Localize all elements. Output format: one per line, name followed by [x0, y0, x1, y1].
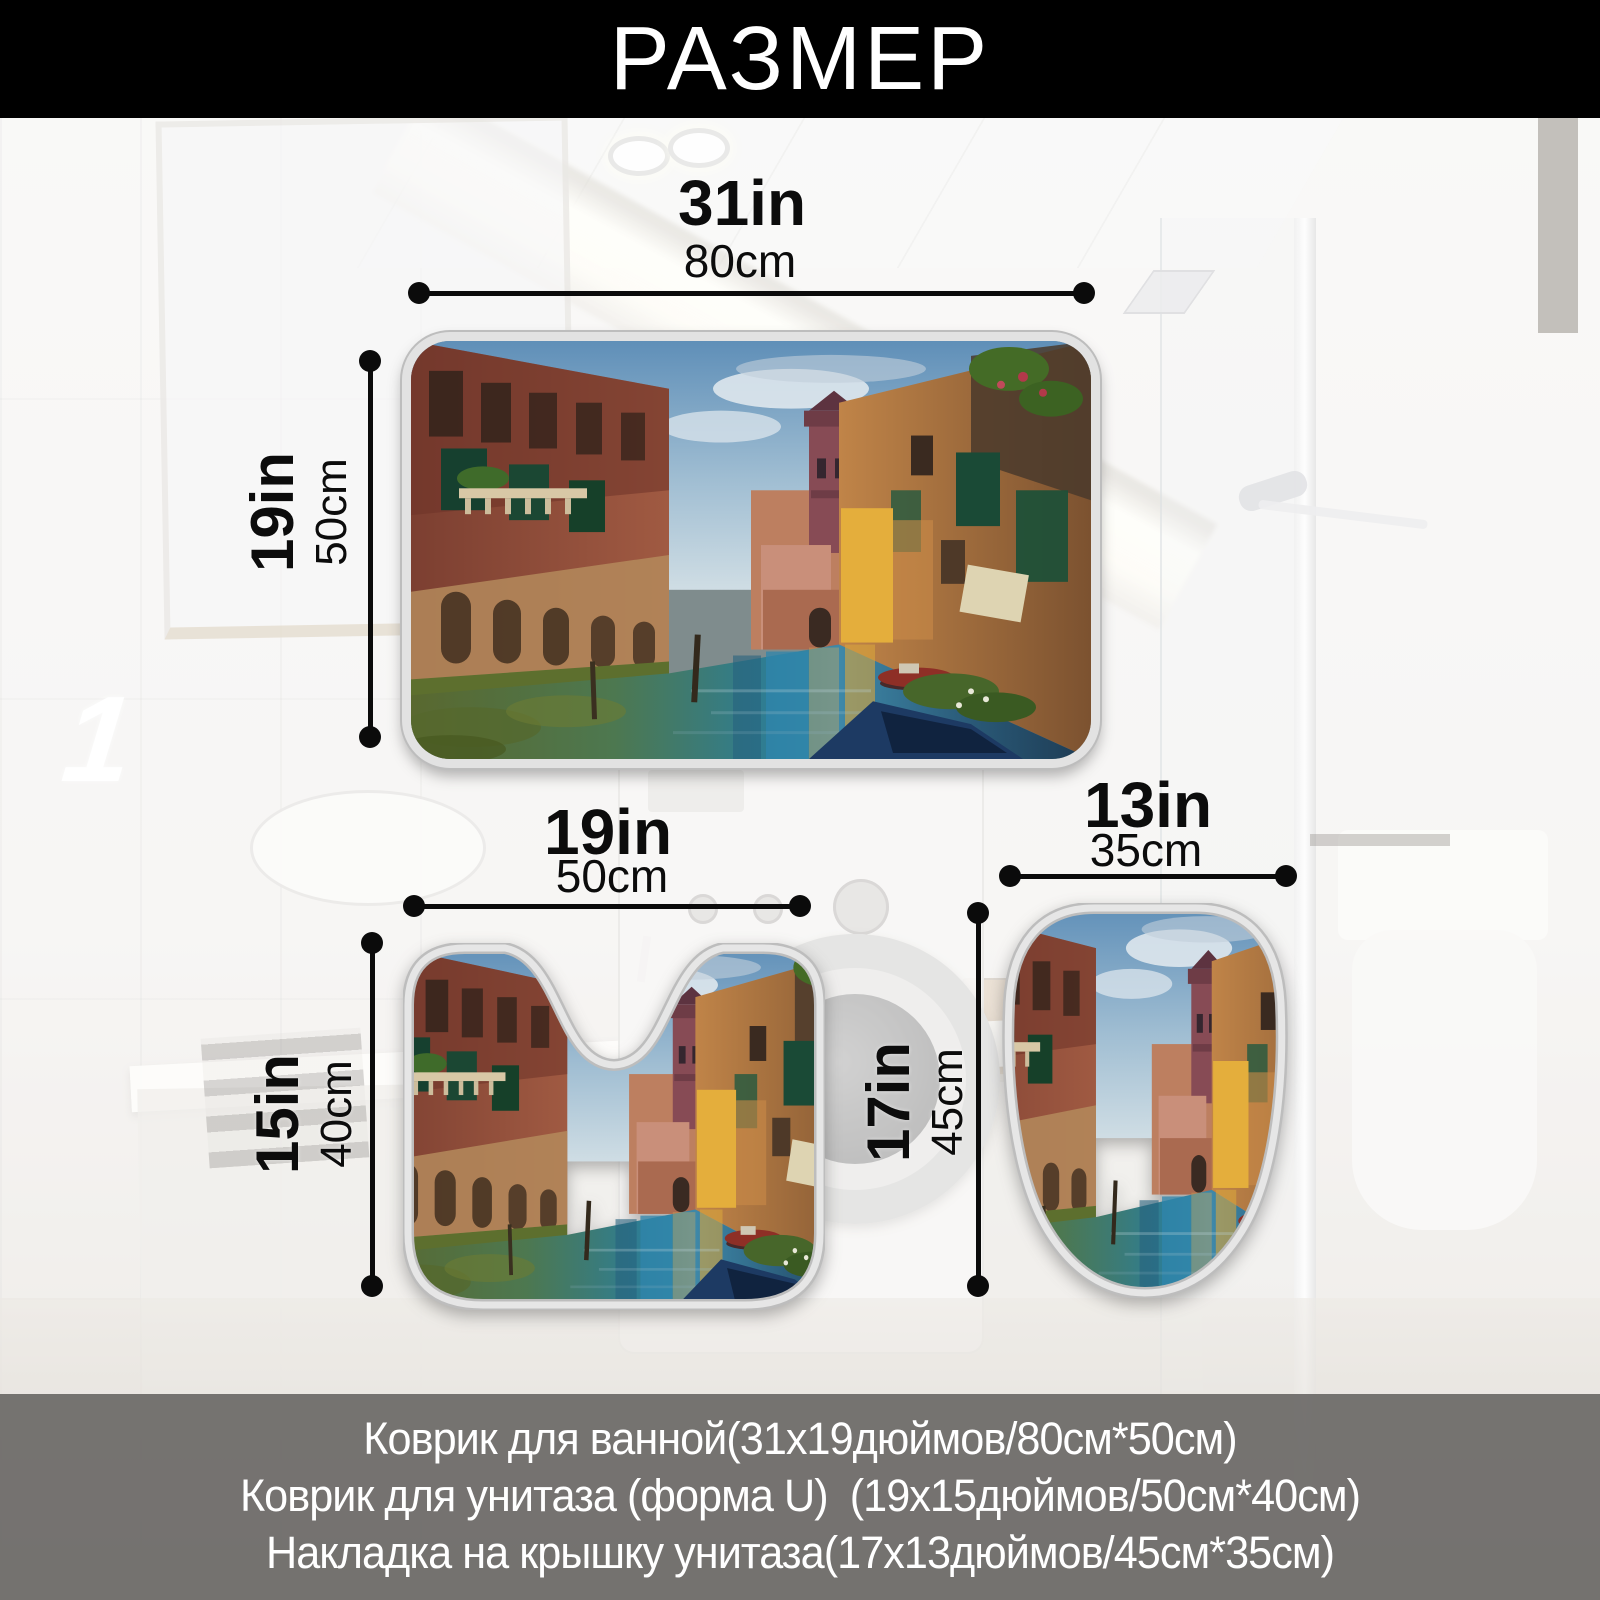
lid-cover-spec-line: Накладка на крышку унитаза(17x13дюймов/4…	[32, 1524, 1568, 1581]
lid-cover-height-label: 17in 45cm	[858, 1042, 976, 1162]
bath-mat-height-inches-label: 19in	[242, 452, 304, 572]
contour-mat-height-label: 15in 40cm	[247, 1054, 365, 1174]
bath-mat-height-dimension-line	[368, 359, 373, 739]
bath-mat-width-cm-label: 80cm	[684, 234, 796, 288]
product-size-infographic: РАЗМЕР 1 31in 80cm 19in 50cm 19in 50cm 1…	[0, 0, 1600, 1600]
lid-cover-height-inches-label: 17in	[858, 1042, 920, 1162]
bath-mat-artwork	[411, 341, 1091, 759]
lid-cover-product-image	[1002, 903, 1288, 1298]
bath-mat-width-dimension-line	[417, 291, 1086, 296]
bath-mat-height-cm-label: 50cm	[304, 452, 360, 572]
page-title: РАЗМЕР	[610, 14, 990, 104]
contour-mat-spec-line: Коврик для унитаза (форма U) (19x15дюймо…	[32, 1467, 1568, 1524]
bath-mat-height-label: 19in 50cm	[242, 452, 360, 572]
lid-cover-height-cm-label: 45cm	[920, 1042, 976, 1162]
title-banner: РАЗМЕР	[0, 0, 1600, 118]
bath-mat-width-inches-label: 31in	[678, 166, 806, 240]
contour-mat-width-cm-label: 50cm	[556, 849, 668, 903]
contour-mat-height-cm-label: 40cm	[309, 1054, 365, 1174]
index-numeral: 1	[58, 678, 139, 800]
size-spec-footer: Коврик для ванной(31x19дюймов/80см*50см)…	[0, 1394, 1600, 1600]
bath-mat-product-image	[402, 332, 1100, 768]
lid-cover-height-dimension-line	[976, 911, 981, 1288]
contour-mat-height-inches-label: 15in	[247, 1054, 309, 1174]
lid-cover-width-cm-label: 35cm	[1090, 823, 1202, 877]
contour-mat-product-image	[403, 943, 825, 1310]
contour-mat-width-dimension-line	[412, 904, 802, 909]
contour-mat-height-dimension-line	[370, 941, 375, 1288]
bath-mat-spec-line: Коврик для ванной(31x19дюймов/80см*50см)	[32, 1410, 1568, 1467]
